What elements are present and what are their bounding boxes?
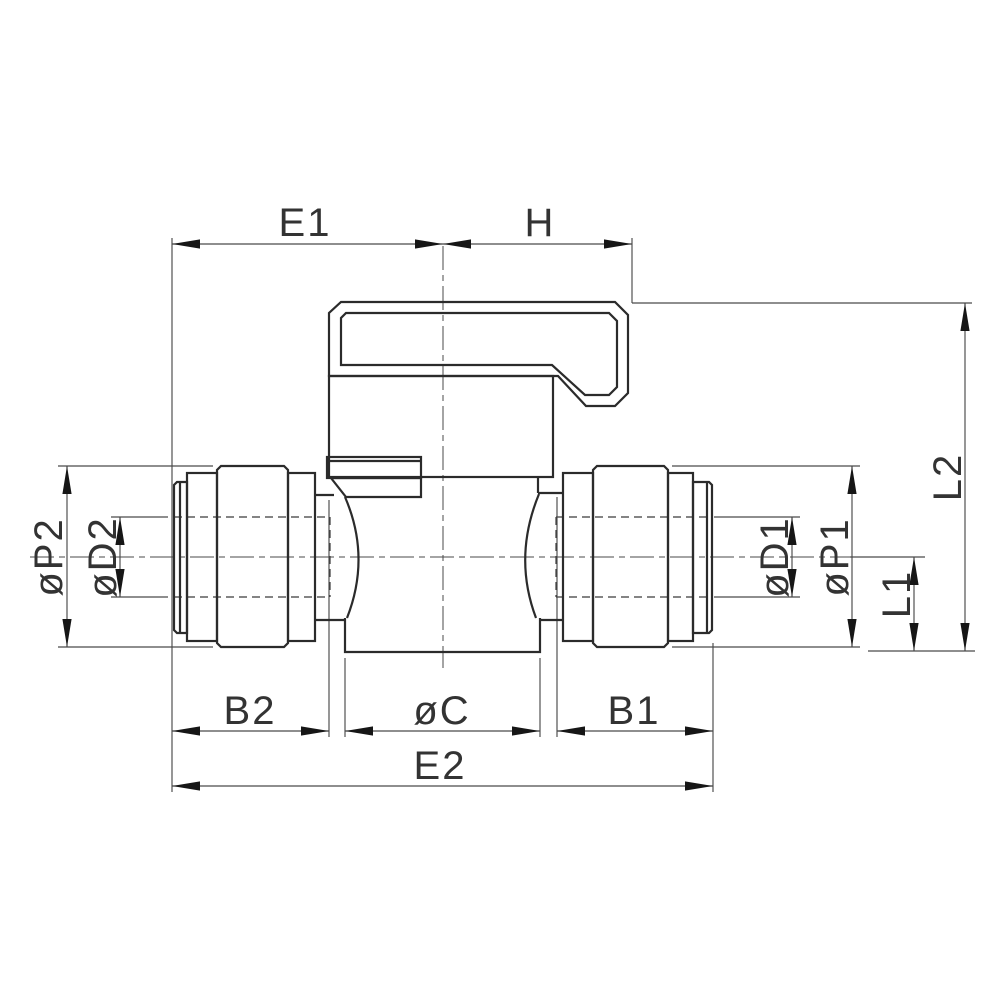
dim-label-b1: B1	[608, 689, 661, 733]
ball-right-arc	[525, 494, 539, 618]
dim-label-h: H	[525, 201, 556, 245]
technical-drawing-page: E1 H B2 øC B1 E2 øP2 øD2 øD1 øP1 L1 L2	[0, 0, 1000, 1000]
p2-top-arrow	[62, 466, 71, 494]
dim-label-l1: L1	[875, 570, 919, 619]
h-left-arrow	[443, 239, 471, 248]
dim-label-d2: øD2	[81, 516, 125, 598]
valve-handle-outer	[329, 302, 628, 406]
e2-left-arrow	[172, 781, 200, 790]
centerlines	[30, 246, 925, 668]
c-right-arrow	[512, 726, 540, 735]
l2-top-arrow	[960, 303, 969, 331]
dim-label-p1: øP1	[813, 517, 857, 596]
h-right-arrow	[604, 239, 632, 248]
b2-right-arrow	[301, 726, 329, 735]
dim-label-b2: B2	[224, 689, 277, 733]
e2-right-arrow	[685, 781, 713, 790]
dim-label-e1: E1	[279, 201, 332, 245]
b1-right-arrow	[685, 726, 713, 735]
technical-drawing-canvas: E1 H B2 øC B1 E2 øP2 øD2 øD1 øP1 L1 L2	[0, 0, 1000, 1000]
p2-bottom-arrow	[62, 619, 71, 647]
c-left-arrow	[345, 726, 373, 735]
dim-label-d1: øD1	[753, 516, 797, 598]
dimension-labels: E1 H B2 øC B1 E2 øP2 øD2 øD1 øP1 L1 L2	[27, 201, 970, 788]
valve-handle-inner	[341, 313, 617, 395]
dim-label-l2: L2	[926, 453, 970, 502]
b1-left-arrow	[557, 726, 585, 735]
dimension-arrowheads	[62, 239, 969, 790]
dim-label-p2: øP2	[27, 517, 71, 596]
p1-bottom-arrow	[847, 619, 856, 647]
stem-collar-lower	[331, 478, 421, 497]
b2-left-arrow	[172, 726, 200, 735]
dimension-lines	[58, 238, 975, 792]
dim-label-c: øC	[413, 689, 470, 733]
e1-left-arrow	[172, 239, 200, 248]
l1-bottom-arrow	[909, 623, 918, 651]
l2-bottom-arrow	[960, 623, 969, 651]
p1-top-arrow	[847, 466, 856, 494]
e1-right-arrow	[415, 239, 443, 248]
dim-label-e2: E2	[414, 744, 467, 788]
